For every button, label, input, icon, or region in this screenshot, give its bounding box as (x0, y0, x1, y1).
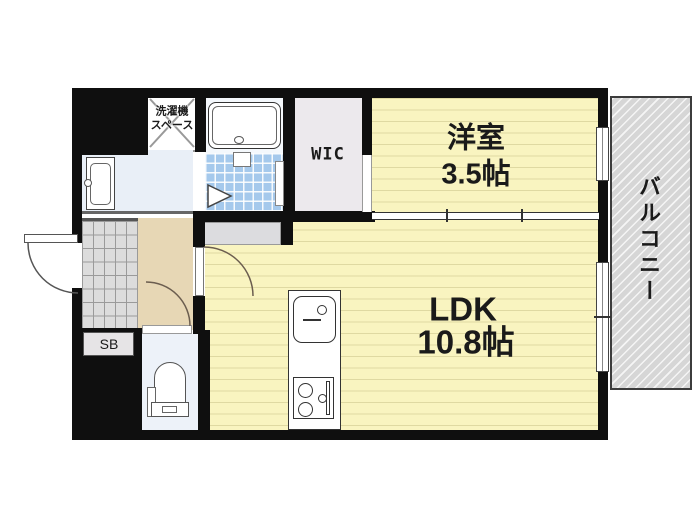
sliding-partition-track (372, 212, 599, 220)
front-door-leaf (24, 234, 78, 243)
entrance-tile-floor (82, 218, 138, 331)
stove-grill-bar (326, 381, 330, 415)
partition-tick-2 (521, 209, 523, 222)
washroom-entry-strip (202, 222, 281, 245)
stove-burner-2 (298, 402, 313, 417)
toilet-base-inner (162, 406, 177, 413)
wall-toilet-right (198, 330, 210, 430)
front-door-swing-arc (28, 243, 78, 293)
wall-hall-ldk-lower (193, 296, 205, 334)
wall-under-bath (193, 211, 293, 222)
wall-left-lower (72, 288, 82, 440)
ldk-size: 10.8帖 (417, 326, 514, 359)
bath-step-box (233, 152, 251, 167)
wall-bath-wic (283, 88, 295, 222)
vanity-bowl (90, 163, 111, 205)
wic-door-opening (362, 155, 372, 212)
wall-block-top-left (72, 88, 148, 155)
balcony-label: バルコニー (637, 175, 659, 305)
laundry-label-line2: スペース (151, 121, 194, 132)
wall-partition-stub (360, 211, 372, 221)
ldk-name: LDK (429, 293, 497, 326)
partition-tick-1 (446, 209, 448, 222)
toilet-door-opening (142, 325, 192, 334)
laundry-label-line1: 洗濯機 (156, 107, 189, 118)
ldk-door-leaf (195, 247, 204, 296)
western-room-size: 3.5帖 (441, 161, 510, 190)
bathtub-drain-icon (234, 136, 244, 144)
western-room-window (596, 127, 609, 181)
ldk-floor (205, 218, 598, 430)
western-room-name: 洋室 (447, 125, 505, 154)
wall-laundry-bath (195, 88, 206, 152)
wall-bottom (72, 430, 608, 440)
floor-plan: バルコニー SB (0, 0, 700, 525)
wall-hall-ldk-upper (193, 211, 205, 247)
wic-label: WIC (311, 147, 345, 164)
wall-entry-strip-right (281, 211, 293, 245)
bath-counter-strip (275, 161, 284, 206)
wall-top (72, 88, 608, 98)
vanity-faucet-icon (84, 179, 92, 187)
shoe-box-label: SB (100, 337, 119, 351)
hallway-floor (138, 218, 193, 330)
bathtub-inner (212, 106, 277, 145)
kitchen-faucet-handle (303, 319, 321, 321)
front-door-opening (72, 243, 82, 288)
stove-burner-1 (298, 383, 313, 398)
wall-wic-western-upper (362, 88, 372, 155)
western-room-floor (372, 98, 598, 212)
ldk-window-tick (594, 316, 611, 318)
kitchen-faucet-icon (317, 305, 327, 315)
